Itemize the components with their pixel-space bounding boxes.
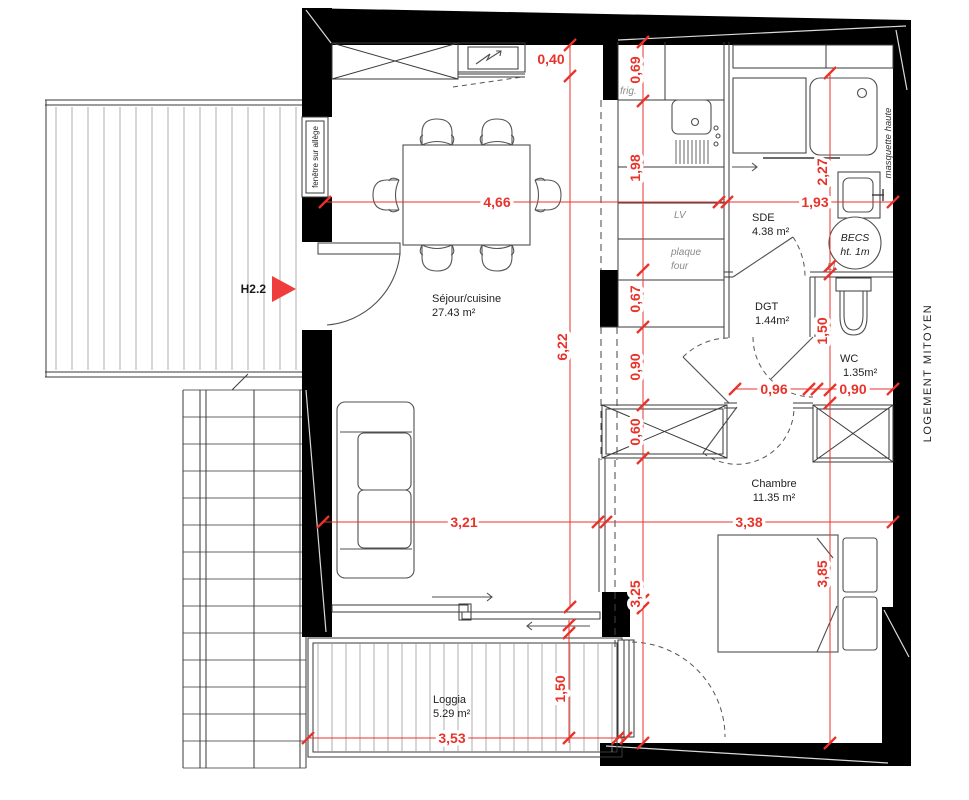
dim-0-90-v: 0,90	[627, 353, 643, 380]
dim-1-93: 1,93	[801, 194, 828, 210]
entrance-door	[302, 242, 400, 330]
closet-left	[602, 405, 727, 458]
dim-4-66: 4,66	[483, 194, 510, 210]
staircase	[183, 374, 306, 768]
window-swing-arc	[632, 642, 725, 737]
loggia-label: Loggia	[433, 694, 467, 706]
sink-drainboard	[676, 140, 708, 164]
chambre-window	[618, 640, 725, 737]
sliding-door	[332, 593, 600, 630]
fridge-label: frig.	[620, 86, 637, 97]
dim-3-25: 3,25	[627, 580, 643, 607]
dim-0-90-h: 0,90	[839, 381, 866, 397]
chambre-area: 11.35 m²	[753, 492, 796, 504]
wall-cabinet	[332, 43, 458, 79]
dim-6-22: 6,22	[554, 333, 570, 360]
dining-table	[403, 145, 530, 245]
dim-1-50-loggia: 1,50	[552, 675, 568, 702]
floorplan-page: fenêtre sur allège H2.2 frig. LV plaque …	[0, 0, 969, 800]
sejour-label: Séjour/cuisine	[432, 293, 501, 305]
fenetre-label: fenêtre sur allège	[311, 126, 320, 188]
entrance-ref-label: H2.2	[241, 282, 267, 296]
dim-0-96: 0,96	[760, 381, 787, 397]
dim-0-69: 0,69	[627, 56, 643, 83]
dgt-door-arc	[683, 338, 729, 357]
svg-text:11.35 m²: 11.35 m²	[753, 492, 796, 504]
sde-door-arc	[793, 237, 805, 277]
floorplan-drawing: fenêtre sur allège H2.2 frig. LV plaque …	[0, 0, 969, 800]
dining-set	[373, 119, 561, 271]
sde-door-leaf	[733, 237, 793, 277]
stair-direction-mark	[232, 374, 248, 390]
svg-text:1.35m²: 1.35m²	[843, 367, 878, 379]
cooktop-label-1: plaque	[670, 247, 701, 258]
kitchen-sink	[672, 100, 711, 134]
dim-3-38: 3,38	[735, 514, 762, 530]
wc-door-leaf	[771, 337, 813, 379]
svg-text:SDE: SDE	[752, 212, 775, 224]
dim-0-67: 0,67	[627, 285, 643, 312]
svg-text:27.43 m²: 27.43 m²	[432, 307, 476, 319]
pillar-a	[603, 40, 618, 100]
window-allege: fenêtre sur allège	[302, 117, 328, 197]
top-wall	[302, 8, 911, 45]
lightning-icon	[476, 51, 501, 64]
wc-label: WC	[840, 353, 858, 365]
dgt-area: 1.44m²	[755, 315, 790, 327]
dim-3-53: 3,53	[438, 730, 465, 746]
kitchen: frig. LV plaque four	[600, 42, 729, 338]
loggia-area: 5.29 m²	[433, 708, 471, 720]
svg-text:Séjour/cuisine: Séjour/cuisine	[432, 293, 501, 305]
closet-right	[813, 405, 893, 462]
dim-1-50-wc: 1,50	[814, 317, 830, 344]
dim-0-60: 0,60	[627, 418, 643, 445]
toilet	[836, 278, 871, 335]
sde-room: BECS ht. 1m LL	[724, 45, 893, 277]
dim-1-98: 1,98	[627, 154, 643, 181]
entrance-arrow	[272, 276, 296, 302]
wc-area: 1.35m²	[843, 367, 878, 379]
svg-text:5.29 m²: 5.29 m²	[433, 708, 471, 720]
chambre-label: Chambre	[751, 478, 796, 490]
bed	[718, 535, 877, 652]
dgt-door-leaf	[683, 357, 729, 403]
sde-area: 4.38 m²	[752, 226, 790, 238]
dishwasher-label: LV	[674, 210, 687, 221]
loggia-chambre-wall	[602, 592, 630, 637]
shower-tray	[810, 78, 877, 155]
vanity	[733, 78, 806, 153]
dgt-label: DGT	[755, 301, 779, 313]
cooktop-label-2: four	[671, 261, 689, 272]
washbasin	[838, 172, 884, 218]
pillow-2	[843, 597, 877, 650]
chambre-door-leaf	[703, 407, 737, 453]
svg-text:Chambre: Chambre	[751, 478, 796, 490]
logement-mitoyen-label: LOGEMENT MITOYEN	[922, 304, 934, 443]
chambre-door-arc	[703, 407, 794, 464]
sofa	[337, 402, 414, 578]
svg-text:DGT: DGT	[755, 301, 779, 313]
becs-label-1: BECS	[841, 232, 870, 244]
svg-text:1.44m²: 1.44m²	[755, 315, 790, 327]
mattress	[718, 535, 838, 652]
left-wall-mid	[302, 197, 332, 242]
pillow-1	[843, 538, 877, 592]
door-swing-arc	[327, 254, 400, 325]
masquette-label: masquette haute	[883, 108, 894, 179]
electrical-panel	[453, 43, 525, 87]
dim-3-21: 3,21	[450, 514, 477, 530]
dim-2-27: 2,27	[814, 158, 830, 185]
right-wall-lower	[882, 607, 911, 766]
svg-text:4.38 m²: 4.38 m²	[752, 226, 790, 238]
dim-0-40: 0,40	[537, 51, 564, 67]
becs-label-2: ht. 1m	[840, 246, 869, 258]
dim-3-85: 3,85	[814, 560, 830, 587]
sejour-area: 27.43 m²	[432, 307, 476, 319]
beam-dashed-lines	[601, 100, 617, 648]
svg-text:Loggia: Loggia	[433, 694, 467, 706]
sde-label: SDE	[752, 212, 775, 224]
left-wall-lower	[302, 330, 332, 637]
pillar-b	[600, 270, 618, 327]
svg-text:WC: WC	[840, 353, 858, 365]
exterior-deck	[45, 100, 302, 377]
